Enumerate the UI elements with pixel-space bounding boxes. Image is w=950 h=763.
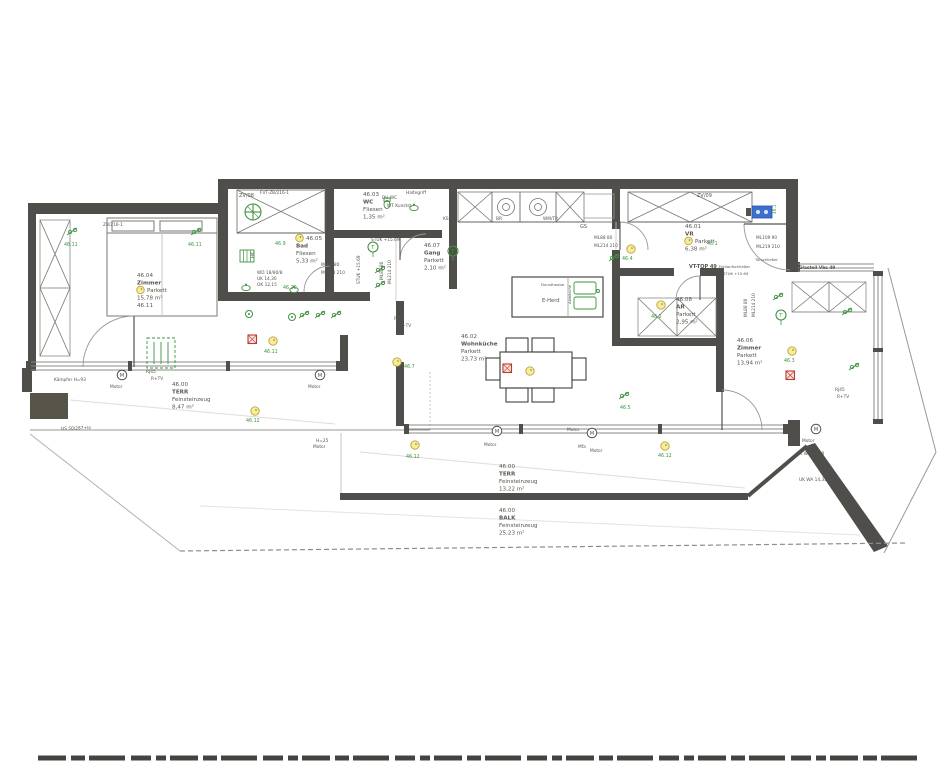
room-label: AR bbox=[676, 305, 685, 311]
light-point-marker-dot bbox=[530, 369, 532, 371]
room-label: 13,94 m² bbox=[737, 360, 762, 367]
room-label: 46.02 bbox=[461, 334, 477, 340]
light-point-marker-dot bbox=[415, 443, 417, 445]
bedroom1-terrace-door bbox=[83, 316, 134, 367]
room-label: 1,35 m² bbox=[363, 214, 385, 221]
annotation-text: Motor bbox=[313, 444, 326, 450]
thermostat-icon-letter: T bbox=[370, 245, 375, 251]
annotation-text: R+TV bbox=[399, 323, 411, 329]
annotation-text: RJ45 bbox=[146, 369, 156, 375]
marker-label: 46.1 bbox=[707, 241, 718, 247]
annotation-text: H=25 bbox=[316, 438, 329, 444]
marker-label: 46.2 bbox=[651, 314, 662, 320]
annotation-text: GS bbox=[580, 224, 587, 230]
annotation-text: STUK +15.69 bbox=[371, 237, 400, 243]
light-point-marker bbox=[411, 441, 419, 449]
light-point-marker bbox=[657, 301, 665, 309]
motor-icon-letter: M bbox=[590, 431, 594, 437]
marker-label: 46.3 bbox=[784, 358, 795, 364]
terrace-parapet bbox=[340, 493, 748, 500]
washbasin-icon bbox=[242, 285, 250, 290]
dining-table bbox=[486, 338, 586, 402]
room-label: 46.00 bbox=[172, 382, 188, 388]
vent-icon bbox=[245, 204, 261, 220]
annotation-text: ML214 210 bbox=[387, 260, 393, 284]
room-label: VR bbox=[685, 232, 694, 238]
room-label: Parkett bbox=[461, 349, 482, 355]
light-point-marker bbox=[627, 245, 635, 253]
annotation-text: Kämpfer H=93 bbox=[54, 377, 86, 383]
room-label: TERR bbox=[499, 472, 516, 478]
annotation-text: UK WA 14,35 bbox=[799, 477, 827, 483]
annotation-text: Motor bbox=[567, 427, 580, 433]
annotation-text: Türschließer bbox=[754, 257, 778, 262]
room-label: Parkett bbox=[676, 312, 697, 318]
room-label: 46.06 bbox=[737, 338, 753, 344]
annotation-text: STUK +15.69 bbox=[723, 271, 749, 276]
annotation-text: DS 50/287+la bbox=[61, 425, 92, 432]
annotation-text: ZB/216-1 bbox=[103, 222, 123, 228]
annotation-text: Glasteil Vbs 49 bbox=[799, 265, 835, 271]
marker-label: 46.4 bbox=[622, 256, 633, 262]
light-point-marker-dot bbox=[397, 360, 399, 362]
room-label: WC bbox=[363, 200, 373, 206]
room-label: 46.07 bbox=[424, 243, 440, 249]
thermostat-icon-letter: T bbox=[778, 313, 783, 319]
light-point-marker bbox=[251, 407, 259, 415]
annotation-text: Motor bbox=[590, 448, 603, 454]
annotation-text: 46.1 bbox=[772, 204, 778, 214]
annotation-text: Motor bbox=[484, 442, 497, 448]
marker-label: 46.11 bbox=[188, 242, 202, 248]
room-label: Wohnküche bbox=[461, 342, 498, 348]
room-label: 8,47 m² bbox=[172, 404, 194, 411]
wardrobe bbox=[40, 220, 70, 356]
room-label: Gang bbox=[424, 251, 440, 257]
light-point-marker-dot bbox=[255, 409, 257, 411]
room-label: 46.01 bbox=[685, 224, 701, 230]
annotation-text: ML88 80 bbox=[321, 262, 340, 268]
bedroom2-door bbox=[722, 390, 762, 430]
annotation-text: ML219 210 bbox=[756, 244, 780, 250]
annotation-text: OK WA 17,08 bbox=[796, 451, 824, 457]
light-point-marker bbox=[393, 358, 401, 366]
room-label: Zimmer bbox=[137, 281, 161, 287]
annotation-text: ZV/08 bbox=[239, 193, 254, 199]
light-point-marker bbox=[661, 442, 669, 450]
lamp-icon bbox=[291, 316, 293, 318]
marker-label: 46.12 bbox=[246, 418, 260, 424]
room-label: 5,33 m² bbox=[296, 258, 318, 265]
motor-icon-letter: M bbox=[814, 427, 818, 433]
light-point-marker-dot bbox=[665, 444, 667, 446]
room-label: TERR bbox=[172, 390, 189, 396]
light-point-marker-dot bbox=[631, 247, 633, 249]
light-point-marker-dot bbox=[661, 303, 663, 305]
annotation-text: HK bbox=[250, 252, 256, 258]
annotation-text: ML214 210 bbox=[321, 270, 345, 276]
light-point-marker bbox=[685, 237, 693, 245]
annotation-text: BR bbox=[496, 216, 502, 222]
room-label: 13,22 m² bbox=[499, 486, 524, 493]
annotation-text: DU-WC bbox=[382, 195, 397, 201]
annotation-text: ML88 80 bbox=[379, 261, 385, 280]
annotation-text: Haltegriff bbox=[406, 190, 427, 196]
annotation-text: ML214 210 bbox=[594, 243, 618, 249]
marker-label: 46.7 bbox=[404, 364, 415, 370]
room-label: Parkett bbox=[737, 353, 758, 359]
marker-label: 46.12 bbox=[658, 453, 672, 459]
annotation-text: RJ45 bbox=[835, 387, 845, 393]
marker-label: 46.11 bbox=[264, 349, 278, 355]
room-label: Fliesen bbox=[296, 251, 316, 257]
annotation-text: ML88 80 bbox=[743, 298, 749, 317]
annotation-text: OK 12,15 bbox=[257, 282, 277, 288]
light-point-marker-dot bbox=[273, 339, 275, 341]
washbasin-icon bbox=[413, 204, 415, 206]
annotation-text: R+TV bbox=[837, 394, 849, 400]
light-point-marker bbox=[137, 286, 145, 294]
lamp-icon bbox=[248, 313, 250, 315]
annotation-text: Dunsthaube bbox=[541, 282, 565, 287]
annotation-text: Abwäsche bbox=[567, 284, 572, 304]
annotation-text: UK 14,30 bbox=[257, 276, 277, 282]
light-point-marker bbox=[526, 367, 534, 375]
annotation-text: E-Herd bbox=[542, 298, 560, 304]
room-label: Feinsteinzeug bbox=[499, 523, 538, 529]
scanned-floor-plan-page: 46.04ZimmerParkett15,78 m²46.1146.05BadF… bbox=[0, 0, 950, 763]
kitchen-cabinets bbox=[458, 192, 616, 222]
annotation-text: VT-TOP 49 bbox=[689, 264, 717, 270]
annotation-text: Freilaufschließer bbox=[719, 264, 751, 269]
annotation-text: WM/TR bbox=[543, 216, 558, 222]
room-label: 46.00 bbox=[499, 464, 515, 470]
annotation-text: Motor bbox=[308, 384, 321, 390]
room-label: 46.03 bbox=[363, 192, 379, 198]
light-point-marker bbox=[788, 347, 796, 355]
room-label: 46.08 bbox=[676, 297, 692, 303]
room-label: Zimmer bbox=[737, 346, 761, 352]
light-point-marker bbox=[296, 234, 304, 242]
washbasin-icon bbox=[245, 284, 247, 286]
annotation-text: WT Kunstst. bbox=[387, 203, 413, 209]
floor-plan-drawing: 46.04ZimmerParkett15,78 m²46.1146.05BadF… bbox=[0, 0, 950, 763]
marker-label: 46.5 bbox=[620, 405, 631, 411]
room-label: Fliesen bbox=[363, 207, 383, 213]
light-point-marker-dot bbox=[689, 239, 691, 241]
annotation-text: FVT-ZB/216-1 bbox=[260, 190, 289, 196]
annotation-text: ML214 210 bbox=[751, 293, 757, 317]
motor-icon-letter: M bbox=[120, 373, 124, 379]
motor-icon-letter: M bbox=[318, 373, 322, 379]
room-label: 2,95 m² bbox=[676, 319, 698, 326]
room-label: Parkett bbox=[147, 288, 168, 294]
annotation-text: ML109 90 bbox=[756, 235, 777, 241]
annotation-text: ZV/09 bbox=[697, 193, 712, 199]
room-label: 46.00 bbox=[499, 508, 515, 514]
motor-icon-letter: M bbox=[495, 429, 499, 435]
distribution-panel bbox=[746, 206, 772, 218]
annotation-text: ML88 80 bbox=[594, 235, 613, 241]
marker-label: 46.12 bbox=[406, 454, 420, 460]
annotation-text: WD 18/80/8 bbox=[257, 270, 283, 276]
annotation-text: STUK +15.69 bbox=[356, 255, 362, 284]
room-label: 6,38 m² bbox=[685, 246, 707, 253]
room-label: BALK bbox=[499, 516, 516, 522]
room-label: 2,10 m² bbox=[424, 265, 446, 272]
marker-label: 46.11 bbox=[64, 242, 78, 248]
bedroom2-closet bbox=[792, 282, 866, 312]
room-label: 46.11 bbox=[137, 303, 153, 309]
light-point-marker-dot bbox=[300, 236, 302, 238]
light-point-marker-dot bbox=[792, 349, 794, 351]
room-label: Feinsteinzeug bbox=[499, 479, 538, 485]
balcony-diagonal-wall bbox=[803, 443, 888, 552]
room-label: Bad bbox=[296, 244, 308, 250]
annotation-text: Mfa bbox=[578, 444, 586, 450]
annotation-text: Motor bbox=[110, 384, 123, 390]
annotation-text: Mfa bbox=[449, 283, 457, 289]
terrace-balcony-structure bbox=[30, 268, 936, 553]
light-point-marker-dot bbox=[141, 288, 143, 290]
balcony-edge bbox=[180, 543, 906, 551]
annotation-text: R+TV bbox=[151, 376, 163, 382]
annotation-text: Motor bbox=[802, 438, 815, 444]
room-label: 46.05 bbox=[306, 236, 322, 242]
light-point-marker bbox=[269, 337, 277, 345]
annotation-text: KS bbox=[443, 216, 449, 222]
room-label: 46.04 bbox=[137, 273, 153, 279]
shaft-zv09 bbox=[628, 192, 752, 222]
washbasin-icon bbox=[293, 286, 295, 288]
annotation-text: RJ45 bbox=[394, 316, 404, 322]
rug-placeholder bbox=[147, 338, 175, 368]
room-label: 25,23 m² bbox=[499, 530, 524, 537]
marker-label: 46.9 bbox=[275, 241, 286, 247]
room-label: 15,78 m² bbox=[137, 295, 162, 302]
room-label: 23,73 m² bbox=[461, 356, 486, 363]
room-label: Parkett bbox=[424, 258, 445, 264]
terrace-planter bbox=[30, 393, 68, 419]
room-label: Feinsteinzeug bbox=[172, 397, 211, 403]
